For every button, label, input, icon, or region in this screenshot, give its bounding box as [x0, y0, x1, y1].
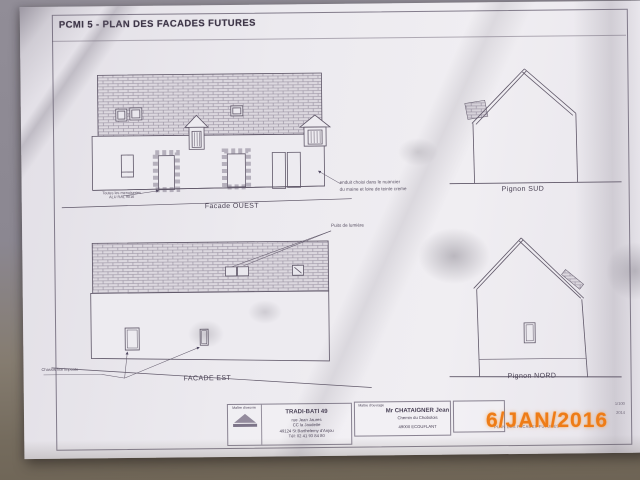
maitre-ouvrage-address1: Chemin du Chobolois [397, 415, 437, 421]
maitre-ouvrage-role-label: Maître d'ouvrage [358, 404, 384, 408]
note-puits-de-lumiere: Puits de lumière [331, 223, 364, 228]
photo-of-plan-sheet: PCMI 5 - PLAN DES FACADES FUTURES [0, 0, 640, 480]
facade-ouest-label: Facade OUEST [205, 203, 259, 211]
pignon-nord-label: Pignon NORD [508, 373, 557, 381]
note-enduit: enduit choisi dans le nuancier du maine … [340, 179, 452, 194]
tradi-bati-logo-base [233, 424, 257, 427]
maitre-ouvrage-address2: 49000 ECOUFLANT [399, 424, 437, 430]
maitre-ouvrage-rolebox: Maître d'ouvrage [355, 402, 385, 435]
maitre-oeuvre-rolebox: Maître d'oeuvre [228, 405, 262, 445]
facade-est-label: FACADE EST [184, 375, 232, 382]
maitre-oeuvre-role-label: Maître d'oeuvre [233, 406, 257, 410]
note-chassis-fixe: Chassis fixe imposte [41, 367, 78, 372]
plan-sheet-paper: PCMI 5 - PLAN DES FACADES FUTURES [20, 1, 640, 459]
pignon-sud-label: Pignon SUD [502, 186, 545, 193]
facade-est-drawing [40, 223, 386, 399]
camera-date-stamp: 6/JAN/2016 [486, 409, 608, 433]
titleblock-maitre-oeuvre: Maître d'oeuvre TRADI-BATI 49 rue Jean J… [227, 403, 352, 446]
pignon-nord-drawing [447, 236, 640, 396]
titleblock-maitre-ouvrage: Maître d'ouvrage Mr CHATAIGNER Jean Chem… [354, 401, 451, 437]
sheet-title: PCMI 5 - PLAN DES FACADES FUTURES [59, 18, 256, 31]
maitre-oeuvre-phone: Tél: 02 41 93 84 80 [289, 433, 325, 439]
tradi-bati-logo-icon [233, 414, 255, 423]
titleblock-scale: 1/100 [569, 401, 625, 407]
note-menuiseries: Toutes les menuiseries ALU RAL 9016 [92, 191, 152, 200]
pignon-sud-drawing [448, 53, 640, 203]
